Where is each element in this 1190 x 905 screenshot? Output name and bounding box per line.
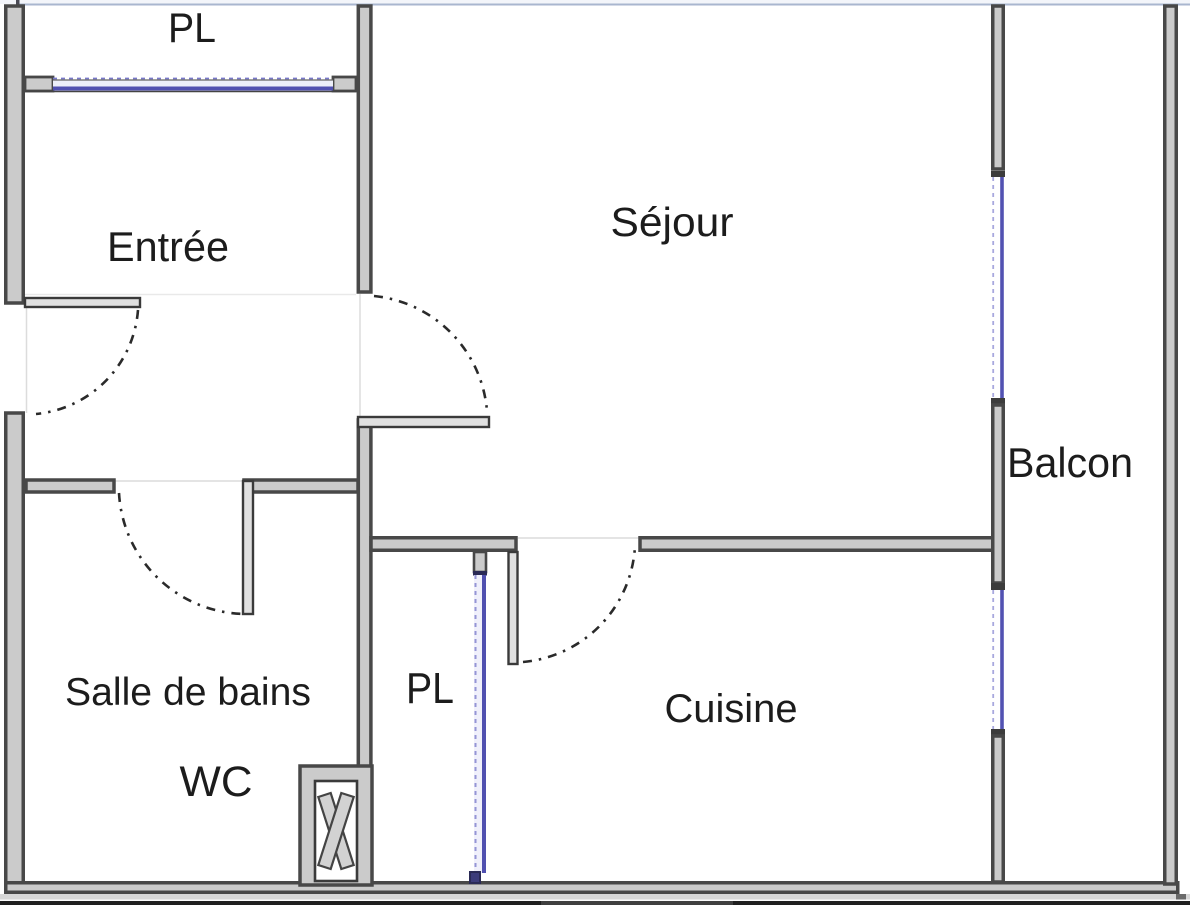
svg-text:Balcon: Balcon [1007,439,1133,486]
svg-text:Cuisine: Cuisine [665,687,798,731]
svg-text:Salle de bains: Salle de bains [65,671,311,714]
svg-text:PL: PL [406,664,454,713]
svg-text:WC: WC [180,758,253,806]
svg-text:PL: PL [168,4,216,51]
svg-text:Séjour: Séjour [611,199,734,245]
svg-text:Entrée: Entrée [107,223,229,270]
